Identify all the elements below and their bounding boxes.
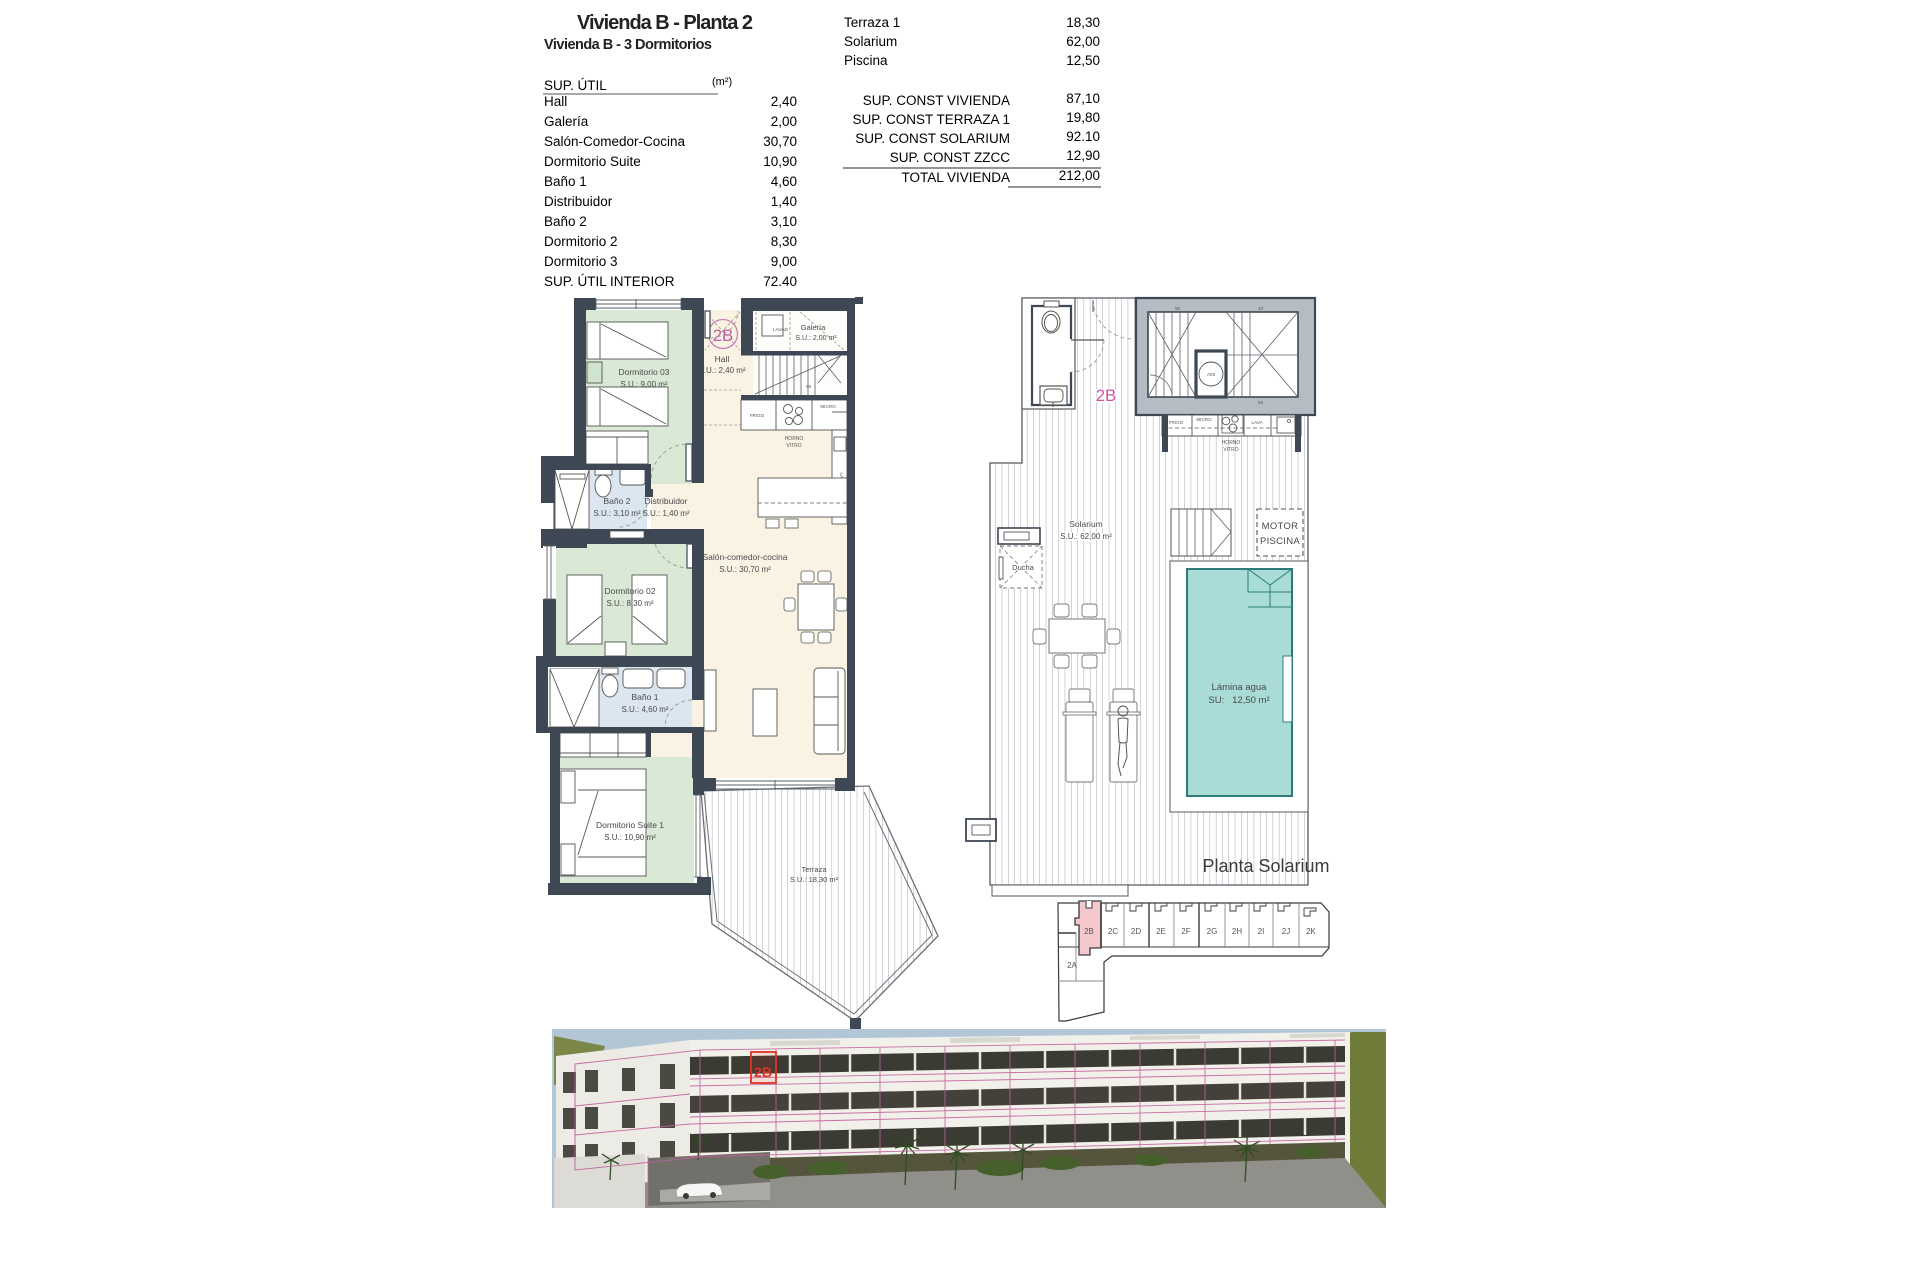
svg-text:8,30: 8,30: [771, 234, 797, 249]
svg-text:2E: 2E: [1156, 927, 1166, 936]
svg-text:Galería: Galería: [801, 323, 826, 332]
svg-text:Lámina agua: Lámina agua: [1212, 682, 1268, 693]
svg-text:2H: 2H: [1232, 927, 1242, 936]
svg-text:2B: 2B: [1084, 927, 1094, 936]
svg-text:Terraza 1: Terraza 1: [844, 15, 900, 30]
svg-text:Vivienda B - 3 Dormitorios: Vivienda B - 3 Dormitorios: [544, 37, 712, 53]
svg-text:(m²): (m²): [712, 76, 732, 88]
svg-text:2D: 2D: [1131, 927, 1141, 936]
svg-text:65: 65: [1258, 400, 1264, 405]
svg-text:2C: 2C: [1108, 927, 1118, 936]
svg-text:56: 56: [1175, 306, 1181, 311]
svg-text:Solarium: Solarium: [1069, 519, 1103, 529]
svg-text:HORNO: HORNO: [1222, 440, 1241, 446]
svg-text:FRIGO: FRIGO: [1169, 420, 1184, 425]
svg-text:SUP. CONST VIVIENDA: SUP. CONST VIVIENDA: [863, 93, 1010, 108]
svg-text:S.U.: 2,00 m²: S.U.: 2,00 m²: [795, 335, 837, 342]
svg-text:PISCINA: PISCINA: [1260, 536, 1300, 547]
svg-text:S.U.: 3,10 m²: S.U.: 3,10 m²: [593, 509, 640, 518]
svg-text:Baño 1: Baño 1: [632, 692, 659, 702]
svg-text:Terraza: Terraza: [801, 865, 827, 874]
svg-text:HORNO: HORNO: [785, 436, 804, 442]
svg-text:06: 06: [806, 384, 812, 389]
svg-text:72.40: 72.40: [763, 274, 797, 289]
svg-text:2,40: 2,40: [771, 94, 797, 109]
svg-text:2A: 2A: [1067, 961, 1077, 970]
svg-text:Hall: Hall: [544, 94, 567, 109]
svg-text:87,10: 87,10: [1066, 91, 1100, 106]
svg-text:MICRO: MICRO: [820, 404, 836, 409]
svg-text:S.U.: 8,30 m²: S.U.: 8,30 m²: [606, 599, 653, 608]
svg-text:SUP. CONST ZZCC: SUP. CONST ZZCC: [890, 150, 1011, 165]
svg-text:Distribuidor: Distribuidor: [544, 194, 613, 209]
svg-text:2F: 2F: [1181, 927, 1190, 936]
svg-text:212,00: 212,00: [1059, 168, 1100, 183]
svg-text:Baño 2: Baño 2: [604, 496, 631, 506]
svg-text:S.U.: 2,40 m²: S.U.: 2,40 m²: [698, 366, 745, 375]
svg-text:VITRO: VITRO: [1223, 447, 1238, 453]
svg-text:3,10: 3,10: [771, 214, 797, 229]
svg-text:MOTOR: MOTOR: [1262, 521, 1299, 532]
svg-text:S.U.: 9,00 m²: S.U.: 9,00 m²: [620, 380, 667, 389]
svg-text:10,90: 10,90: [763, 154, 797, 169]
svg-text:SUP. CONST TERRAZA 1: SUP. CONST TERRAZA 1: [852, 112, 1010, 127]
svg-text:LAVAD: LAVAD: [773, 327, 789, 333]
svg-text:SU: 12,50 m²: SU: 12,50 m²: [1208, 695, 1269, 706]
svg-text:2K: 2K: [1306, 927, 1316, 936]
svg-text:Dormitorio Suite 1: Dormitorio Suite 1: [596, 820, 664, 830]
svg-text:30,70: 30,70: [763, 134, 797, 149]
svg-text:SUP. CONST SOLARIUM: SUP. CONST SOLARIUM: [855, 131, 1010, 146]
svg-text:2B: 2B: [754, 1064, 772, 1080]
svg-text:S.U.: 1,40 m²: S.U.: 1,40 m²: [642, 509, 689, 518]
svg-text:Salón-Comedor-Cocina: Salón-Comedor-Cocina: [544, 134, 686, 149]
svg-text:Distribuidor: Distribuidor: [645, 496, 688, 506]
svg-text:9,00: 9,00: [771, 254, 797, 269]
svg-text:FRIGO: FRIGO: [750, 413, 765, 418]
svg-text:Dormitorio 03: Dormitorio 03: [618, 367, 669, 377]
svg-text:92.10: 92.10: [1066, 129, 1100, 144]
svg-text:4,60: 4,60: [771, 174, 797, 189]
svg-text:Dormitorio 02: Dormitorio 02: [604, 586, 655, 596]
svg-text:LAVA: LAVA: [1251, 420, 1263, 425]
svg-text:SUP. ÚTIL INTERIOR: SUP. ÚTIL INTERIOR: [544, 274, 675, 289]
svg-text:2,00: 2,00: [771, 114, 797, 129]
svg-text:12,50: 12,50: [1066, 53, 1100, 68]
svg-text:18,30: 18,30: [1066, 15, 1100, 30]
svg-text:Piscina: Piscina: [844, 53, 888, 68]
svg-text:2J: 2J: [1282, 927, 1290, 936]
svg-text:Solarium: Solarium: [844, 34, 897, 49]
svg-text:Baño 2: Baño 2: [544, 214, 587, 229]
svg-text:A03: A03: [1207, 372, 1216, 377]
svg-text:S.U.: 62,00 m²: S.U.: 62,00 m²: [1060, 532, 1112, 541]
svg-text:Salón-comedor-cocina: Salón-comedor-cocina: [702, 552, 787, 562]
svg-text:Baño 1: Baño 1: [544, 174, 587, 189]
svg-text:Dormitorio 3: Dormitorio 3: [544, 254, 618, 269]
svg-text:S.U.: 30,70 m²: S.U.: 30,70 m²: [719, 565, 771, 574]
svg-text:12,90: 12,90: [1066, 148, 1100, 163]
svg-text:2I: 2I: [1258, 927, 1265, 936]
svg-text:Dormitorio Suite: Dormitorio Suite: [544, 154, 641, 169]
svg-text:S.U.: 4,60 m²: S.U.: 4,60 m²: [621, 705, 668, 714]
svg-text:S.U.: 10,90 m²: S.U.: 10,90 m²: [604, 833, 656, 842]
svg-text:Planta Solarium: Planta Solarium: [1202, 856, 1329, 876]
svg-text:TOTAL VIVIENDA: TOTAL VIVIENDA: [901, 170, 1010, 185]
svg-text:Dormitorio 2: Dormitorio 2: [544, 234, 618, 249]
svg-text:1,40: 1,40: [771, 194, 797, 209]
svg-text:MICRO: MICRO: [1196, 417, 1212, 422]
svg-text:Ducha: Ducha: [1012, 563, 1035, 572]
svg-text:2G: 2G: [1207, 927, 1218, 936]
svg-text:VITRO: VITRO: [786, 443, 801, 449]
svg-text:S.U.: 18,30 m²: S.U.: 18,30 m²: [790, 875, 839, 884]
svg-text:10: 10: [1258, 306, 1264, 311]
svg-text:Galería: Galería: [544, 114, 589, 129]
svg-text:Vivienda B - Planta 2: Vivienda B - Planta 2: [577, 12, 753, 34]
svg-text:2B: 2B: [1096, 386, 1117, 405]
svg-text:SUP. ÚTIL: SUP. ÚTIL: [544, 78, 607, 93]
svg-text:Hall: Hall: [715, 354, 730, 364]
svg-text:62,00: 62,00: [1066, 34, 1100, 49]
svg-text:19,80: 19,80: [1066, 110, 1100, 125]
